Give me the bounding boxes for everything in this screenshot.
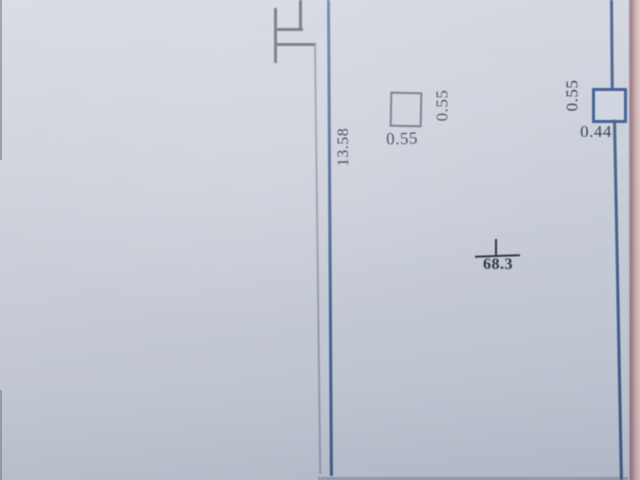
room-area-marker: 68.3: [472, 239, 524, 277]
room-area-value: 68.3: [472, 256, 524, 273]
floor-plan-photo: 13.58 0.55 0.55 0.55 0.44 68.3: [0, 0, 640, 480]
dim-label-mid-column-side: 0.55: [434, 83, 451, 129]
column-symbol-middle: [390, 92, 423, 128]
dim-label-mid-column-bottom: 0.55: [373, 129, 432, 148]
photo-edge-right-pink: [628, 0, 640, 480]
dim-label-right-column-bottom: 0.44: [569, 123, 623, 140]
drawing-layer: 13.58 0.55 0.55 0.55 0.44 68.3: [0, 0, 640, 480]
photo-edge-left-bottom: [0, 390, 2, 480]
column-symbol-right: [592, 88, 627, 123]
wall-line-left-ink: [327, 0, 333, 476]
jamb-line-lower-horizontal: [275, 43, 316, 46]
dim-label-left-wall: 13.58: [335, 115, 353, 179]
wall-line-left-pencil: [314, 44, 321, 474]
jamb-line-upper-horizontal: [275, 28, 303, 31]
wall-line-right-ink-upper: [610, 0, 614, 89]
wall-line-right-ink-lower: [613, 119, 623, 480]
dim-label-right-column-side: 0.55: [564, 73, 581, 119]
jamb-line-top-vertical: [299, 0, 302, 31]
photo-edge-left-top: [0, 0, 2, 160]
jamb-line-left-vertical: [274, 8, 277, 63]
